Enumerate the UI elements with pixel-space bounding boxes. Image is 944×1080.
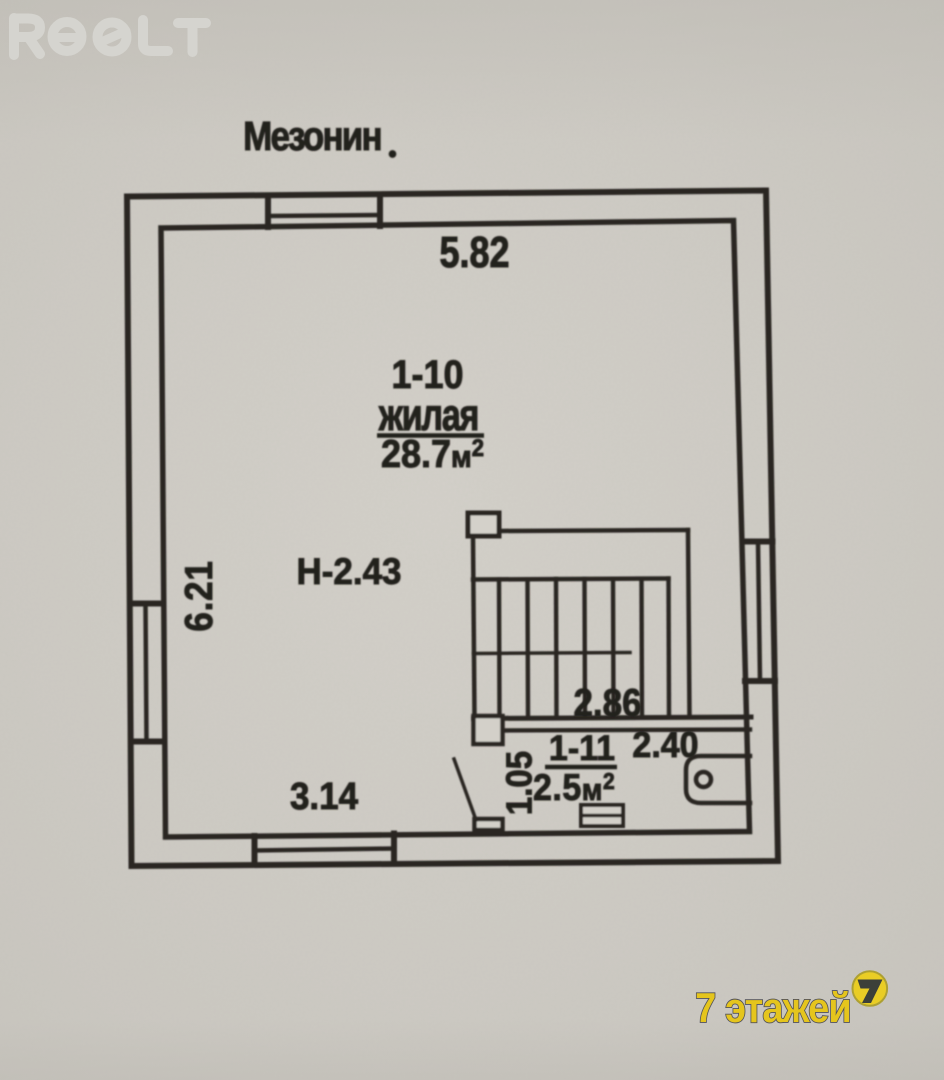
svg-text:1.05: 1.05 <box>500 751 540 815</box>
svg-text:Мезонин: Мезонин <box>243 115 381 160</box>
svg-text:1-11: 1-11 <box>549 729 615 768</box>
svg-text:7 этажей: 7 этажей <box>695 985 851 1031</box>
svg-text:2.5м2: 2.5м2 <box>533 767 615 809</box>
svg-text:2.40: 2.40 <box>632 725 698 765</box>
svg-text:5.82: 5.82 <box>439 228 509 277</box>
svg-text:Н-2.43: Н-2.43 <box>296 551 401 592</box>
svg-text:3.14: 3.14 <box>290 775 359 818</box>
svg-text:2.86: 2.86 <box>573 680 641 724</box>
svg-text:6.21: 6.21 <box>176 560 220 631</box>
